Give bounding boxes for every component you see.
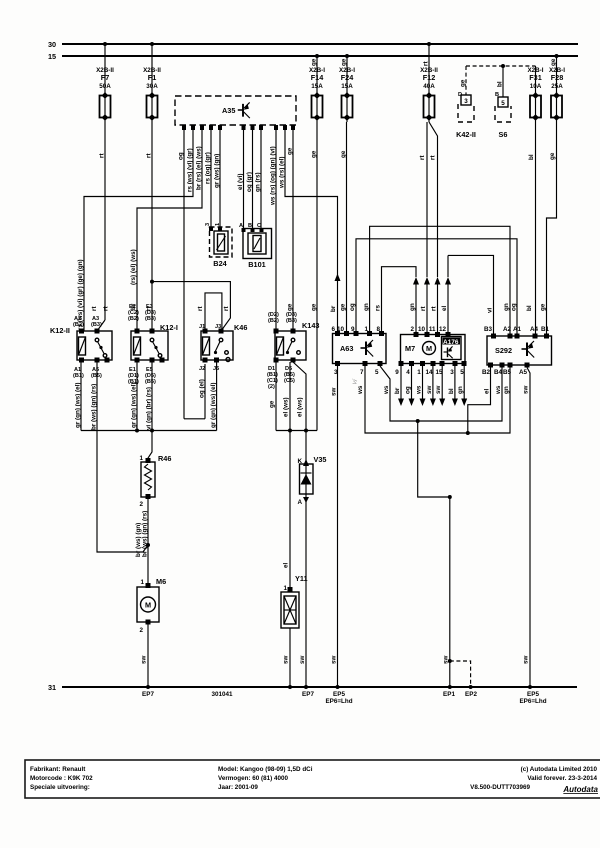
svg-text:br: br bbox=[394, 387, 401, 394]
svg-text:ws (rs) (el): ws (rs) (el) bbox=[279, 157, 286, 190]
svg-text:(B3): (B3) bbox=[145, 316, 156, 322]
svg-text:gn: gn bbox=[503, 386, 510, 394]
svg-text:ge: ge bbox=[311, 58, 318, 66]
svg-text:ge: ge bbox=[540, 303, 547, 311]
svg-text:1: 1 bbox=[215, 223, 221, 226]
svg-text:gr (gn) (ws) (el): gr (gn) (ws) (el) bbox=[131, 383, 138, 428]
svg-text:ws (rs) (og) (gn) (vi): ws (rs) (og) (gn) (vi) bbox=[270, 146, 277, 206]
svg-text:ge: ge bbox=[269, 400, 276, 408]
svg-text:(2): (2) bbox=[268, 384, 275, 390]
svg-text:br: br bbox=[330, 305, 337, 312]
svg-text:Vermogen: 60 (81) 4000: Vermogen: 60 (81) 4000 bbox=[218, 775, 289, 782]
svg-text:ge: ge bbox=[460, 79, 467, 87]
svg-text:EP7: EP7 bbox=[142, 691, 154, 698]
svg-text:og: og bbox=[511, 303, 518, 311]
svg-text:EP6=Lhd: EP6=Lhd bbox=[325, 698, 352, 705]
svg-text:K42-II: K42-II bbox=[456, 130, 476, 139]
svg-text:br (rs) (el) (ws): br (rs) (el) (ws) bbox=[196, 146, 203, 190]
svg-text:M: M bbox=[426, 344, 432, 353]
svg-text:4: 4 bbox=[406, 369, 410, 376]
svg-text:(B2): (B2) bbox=[268, 318, 279, 324]
svg-text:ge: ge bbox=[311, 150, 318, 158]
svg-text:el (vi): el (vi) bbox=[237, 174, 244, 190]
svg-text:bl: bl bbox=[528, 154, 535, 160]
svg-text:M: M bbox=[145, 601, 151, 610]
svg-text:Autodata: Autodata bbox=[562, 785, 598, 794]
svg-text:301041: 301041 bbox=[211, 691, 233, 698]
svg-text:gn: gn bbox=[503, 303, 510, 311]
svg-text:gn (rs): gn (rs) bbox=[255, 172, 262, 192]
svg-text:1: 1 bbox=[140, 579, 144, 586]
svg-text:(rs) (el) (ws): (rs) (el) (ws) bbox=[130, 249, 137, 285]
svg-text:ge: ge bbox=[550, 58, 557, 66]
svg-text:og (gr): og (gr) bbox=[246, 172, 253, 192]
svg-text:6: 6 bbox=[331, 326, 335, 333]
svg-text:J2: J2 bbox=[199, 366, 205, 372]
svg-text:ws: ws bbox=[383, 385, 390, 395]
svg-text:bl: bl bbox=[526, 305, 533, 311]
svg-text:A4: A4 bbox=[530, 326, 539, 333]
svg-text:EP6=Lhd: EP6=Lhd bbox=[519, 698, 546, 705]
svg-text:5: 5 bbox=[501, 100, 505, 107]
svg-text:el (ws): el (ws) bbox=[297, 397, 304, 417]
svg-text:R46: R46 bbox=[158, 454, 171, 463]
svg-text:Y11: Y11 bbox=[295, 574, 308, 583]
svg-text:Speciale uitvoering:: Speciale uitvoering: bbox=[30, 784, 90, 791]
svg-text:7: 7 bbox=[360, 369, 364, 376]
svg-text:ge: ge bbox=[549, 152, 556, 160]
svg-text:og: og bbox=[405, 386, 412, 394]
svg-text:V35: V35 bbox=[314, 455, 327, 464]
svg-text:ge: ge bbox=[287, 147, 294, 155]
svg-text:2: 2 bbox=[139, 627, 143, 634]
svg-text:10: 10 bbox=[418, 326, 426, 333]
svg-text:(B2): (B2) bbox=[73, 322, 84, 328]
svg-text:1: 1 bbox=[139, 455, 143, 462]
svg-text:S6: S6 bbox=[499, 130, 508, 139]
svg-text:K12-II: K12-II bbox=[50, 326, 70, 335]
svg-text:ws: ws bbox=[357, 385, 364, 395]
svg-text:A35: A35 bbox=[222, 106, 235, 115]
svg-text:ge: ge bbox=[341, 58, 348, 66]
svg-text:K46: K46 bbox=[234, 323, 247, 332]
svg-text:sw: sw bbox=[435, 385, 442, 394]
svg-text:EP5: EP5 bbox=[527, 691, 539, 698]
svg-text:vi: vi bbox=[487, 307, 494, 313]
svg-text:sw: sw bbox=[523, 385, 530, 394]
svg-text:rs (ws) (vi) (gr): rs (ws) (vi) (gr) bbox=[187, 148, 194, 192]
svg-text:Motorcode : K9K 702: Motorcode : K9K 702 bbox=[30, 775, 93, 782]
svg-text:A5: A5 bbox=[519, 369, 528, 376]
svg-text:rs: rs bbox=[375, 305, 382, 311]
svg-text:br (ws) (gn) (rs): br (ws) (gn) (rs) bbox=[142, 511, 149, 557]
svg-text:5: 5 bbox=[375, 369, 379, 376]
svg-text:1: 1 bbox=[417, 369, 421, 376]
svg-text:V8.500-DUTT703969: V8.500-DUTT703969 bbox=[470, 784, 530, 791]
svg-text:12: 12 bbox=[439, 326, 447, 333]
svg-text:sw: sw bbox=[299, 655, 306, 664]
svg-text:B4: B4 bbox=[494, 369, 503, 376]
svg-text:B101: B101 bbox=[248, 260, 265, 269]
svg-text:(B1): (B1) bbox=[73, 373, 84, 379]
svg-text:B24: B24 bbox=[213, 259, 227, 268]
svg-text:og: og bbox=[349, 303, 356, 311]
svg-text:ge: ge bbox=[340, 303, 347, 311]
svg-text:(B3): (B3) bbox=[91, 322, 102, 328]
svg-text:el: el bbox=[484, 388, 491, 394]
svg-text:Jaar: 2001-09: Jaar: 2001-09 bbox=[218, 784, 258, 791]
svg-text:gn: gn bbox=[363, 303, 370, 311]
svg-text:A176: A176 bbox=[443, 339, 459, 346]
svg-text:bl: bl bbox=[448, 388, 455, 394]
svg-text:el: el bbox=[283, 562, 290, 568]
svg-text:sw: sw bbox=[523, 655, 530, 664]
svg-text:31: 31 bbox=[48, 683, 56, 692]
svg-text:sw: sw bbox=[426, 385, 433, 394]
svg-text:sw: sw bbox=[331, 387, 338, 396]
svg-text:sw: sw bbox=[283, 655, 290, 664]
svg-text:el: el bbox=[441, 305, 448, 311]
svg-text:EP7: EP7 bbox=[302, 691, 314, 698]
svg-text:el (ws): el (ws) bbox=[283, 397, 290, 417]
svg-text:Valid forever. 23-3-2014: Valid forever. 23-3-2014 bbox=[527, 775, 597, 782]
svg-text:2: 2 bbox=[139, 501, 143, 508]
svg-text:ge: ge bbox=[340, 150, 347, 158]
svg-text:K143: K143 bbox=[302, 321, 319, 330]
svg-text:og: og bbox=[178, 152, 185, 160]
svg-text:Fabrikant: Renault: Fabrikant: Renault bbox=[30, 766, 86, 773]
svg-text:9: 9 bbox=[395, 369, 399, 376]
svg-text:EP2: EP2 bbox=[465, 691, 477, 698]
svg-text:B1: B1 bbox=[541, 326, 550, 333]
svg-text:sw: sw bbox=[331, 655, 338, 664]
svg-text:ws: ws bbox=[495, 385, 502, 395]
svg-text:bl: bl bbox=[497, 81, 504, 87]
svg-text:gr (ws) (gn): gr (ws) (gn) bbox=[214, 154, 221, 188]
svg-text:M7: M7 bbox=[405, 344, 415, 353]
svg-text:ge: ge bbox=[287, 303, 294, 311]
svg-text:vi (gn) (br) (rs): vi (gn) (br) (rs) bbox=[146, 387, 153, 430]
svg-text:2: 2 bbox=[410, 326, 414, 333]
svg-text:A: A bbox=[297, 499, 302, 506]
svg-text:B3: B3 bbox=[484, 326, 493, 333]
svg-text:rs (og) (gr): rs (og) (gr) bbox=[205, 152, 212, 184]
svg-text:3: 3 bbox=[205, 223, 211, 226]
svg-text:15: 15 bbox=[48, 52, 56, 61]
svg-text:30: 30 bbox=[48, 40, 56, 49]
svg-text:(c) Autodata Limited 2010: (c) Autodata Limited 2010 bbox=[521, 766, 598, 773]
svg-text:Model: Kangoo (98-09) 1,5D dCi: Model: Kangoo (98-09) 1,5D dCi bbox=[218, 766, 313, 773]
svg-text:11: 11 bbox=[429, 326, 436, 333]
svg-text:EP5: EP5 bbox=[333, 691, 345, 698]
svg-text:EP1: EP1 bbox=[443, 691, 455, 698]
svg-text:(B2): (B2) bbox=[128, 316, 139, 322]
svg-text:B2: B2 bbox=[482, 369, 491, 376]
svg-text:A63: A63 bbox=[340, 344, 353, 353]
svg-text:gr (gn) (ws) (el): gr (gn) (ws) (el) bbox=[75, 383, 82, 428]
svg-text:3: 3 bbox=[464, 98, 468, 105]
svg-text:25A: 25A bbox=[551, 83, 563, 90]
svg-text:(B3): (B3) bbox=[286, 318, 297, 324]
svg-text:gn: gn bbox=[409, 303, 416, 311]
svg-text:br (ws) (gn) (rs): br (ws) (gn) (rs) bbox=[91, 384, 98, 430]
svg-text:ge: ge bbox=[311, 303, 318, 311]
svg-text:sw: sw bbox=[141, 655, 148, 664]
svg-text:ws: ws bbox=[416, 385, 423, 395]
svg-text:S292: S292 bbox=[495, 346, 512, 355]
svg-text:(B5): (B5) bbox=[145, 379, 156, 385]
svg-text:gn: gn bbox=[457, 386, 464, 394]
svg-text:14: 14 bbox=[425, 369, 433, 376]
svg-text:1: 1 bbox=[283, 585, 287, 592]
svg-text:M6: M6 bbox=[156, 577, 166, 586]
svg-text:og (el): og (el) bbox=[199, 379, 206, 398]
svg-text:3: 3 bbox=[450, 369, 454, 376]
svg-text:gr (gn) (ws) (el): gr (gn) (ws) (el) bbox=[210, 383, 217, 428]
